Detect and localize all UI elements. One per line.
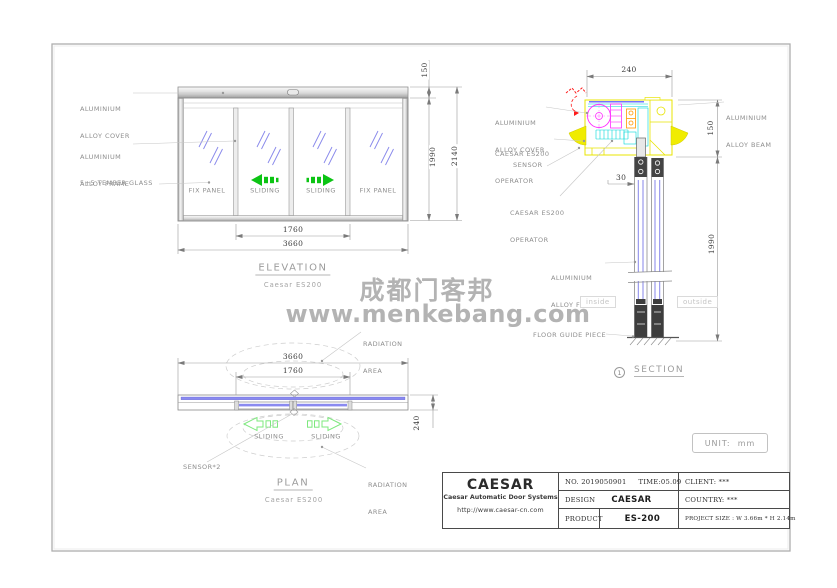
section-sensor-label: SENSOR — [513, 161, 543, 170]
label-line: ALUMINIUM — [726, 114, 771, 123]
plan-arrow-left-icon — [244, 418, 278, 431]
label-line: CAESAR ES200 — [495, 150, 549, 159]
sensor-wedge-right-icon — [671, 126, 688, 145]
title-block-company-cell: CAESAR Caesar Automatic Door Systems htt… — [443, 473, 559, 528]
plan-subtitle: Caesar ES200 — [265, 496, 323, 504]
elevation-title: ELEVATION — [255, 263, 330, 276]
label-line: RADIATION — [368, 481, 407, 490]
panel-label-sliding-left: SLIDING — [250, 187, 280, 196]
label-line: AREA — [368, 508, 407, 517]
title-block-divider — [599, 509, 600, 528]
plan-radiation-label-bottom: RADIATION AREA — [368, 463, 407, 526]
dim-plan-total-width: 3660 — [283, 353, 303, 361]
unit-note: UNIT: mm — [705, 439, 756, 448]
section-operator-bottom-label: CAESAR ES200 OPERATOR — [510, 191, 564, 254]
elevation-glass-label: 5+5 TEMPER GLASS — [80, 179, 153, 188]
section-beam-label: ALUMINIUM ALLOY BEAM — [726, 96, 771, 159]
title-block-middle-column: NO. 2019050901 TIME:05.09 DESIGN CAESAR … — [559, 473, 679, 528]
company-subtitle: Caesar Automatic Door Systems — [443, 494, 558, 501]
label-line: OPERATOR — [510, 236, 564, 245]
product-value: ES-200 — [625, 514, 661, 524]
plan-sliding-right-label: SLIDING — [311, 433, 341, 442]
project-size-value: PROJECT SIZE : W 3.66m * H 2.14m — [685, 516, 796, 522]
section-marker-number: 1 — [614, 367, 625, 378]
company-name: CAESAR — [443, 477, 558, 493]
company-website: http://www.caesar-cn.com — [443, 507, 558, 514]
panel-label-fix-right: FIX PANEL — [360, 187, 397, 196]
dim-section-door-gap: 30 — [616, 174, 626, 182]
label-line: AREA — [363, 367, 402, 376]
country-value: COUNTRY: *** — [685, 496, 738, 504]
label-line: ALUMINIUM — [80, 153, 129, 162]
outside-tag: outside — [677, 296, 718, 308]
section-frame-label: ALUMINIUM ALLOY FRAME — [551, 256, 600, 319]
panel-label-sliding-right: SLIDING — [306, 187, 336, 196]
dim-plan-depth: 240 — [413, 413, 421, 432]
dim-plan-sliding-width: 1760 — [283, 367, 303, 375]
plan-arrow-right-icon — [308, 418, 342, 431]
drawing-sheet: ALUMINIUM ALLOY COVER ALUMINIUM ALLOY FR… — [0, 0, 837, 588]
plan-sliding-left-label: SLIDING — [254, 433, 284, 442]
client-value: CLIENT: *** — [685, 478, 729, 486]
panel-label-fix-left: FIX PANEL — [189, 187, 226, 196]
inside-tag: inside — [580, 296, 616, 308]
title-block-row-country: COUNTRY: *** — [679, 491, 789, 509]
title-block-row-product: PRODUCT ES-200 — [559, 509, 678, 528]
title-block-row-client: CLIENT: *** — [679, 473, 789, 491]
dim-elevation-door-height: 1990 — [429, 145, 437, 169]
label-line: OPERATOR — [495, 177, 549, 186]
sensor-wedge-left-icon — [569, 126, 586, 145]
plan-title: PLAN — [274, 478, 313, 491]
label-line: ALUMINIUM — [80, 105, 130, 114]
title-block: CAESAR Caesar Automatic Door Systems htt… — [442, 472, 790, 529]
title-block-row-design: DESIGN CAESAR — [559, 491, 678, 509]
label-line: ALUMINIUM — [551, 274, 600, 283]
elevation-frame-label: ALUMINIUM ALLOY FRAME — [80, 135, 129, 198]
design-value: CAESAR — [611, 495, 651, 505]
dim-section-head-width: 240 — [621, 66, 636, 74]
label-line: ALLOY BEAM — [726, 141, 771, 150]
product-label: PRODUCT — [565, 515, 603, 523]
title-block-row-no: NO. 2019050901 TIME:05.09 — [559, 473, 678, 491]
label-line: RADIATION — [363, 340, 402, 349]
plan-sensor-label: SENSOR*2 — [183, 463, 221, 472]
drawing-time: TIME:05.09 — [639, 478, 682, 486]
dim-section-head-height: 150 — [707, 118, 715, 137]
drawing-number: NO. 2019050901 — [565, 478, 627, 486]
dim-elevation-total-height: 2140 — [451, 144, 459, 168]
dim-elevation-total-width: 3660 — [283, 240, 303, 248]
unit-note-box: UNIT: mm — [692, 433, 768, 453]
watermark-text-url: www.menkebang.com — [285, 300, 590, 328]
section-door-rails — [627, 138, 679, 345]
section-floor-guide-label: FLOOR GUIDE PIECE — [533, 331, 606, 340]
section-title: SECTION — [634, 365, 684, 377]
plan-radiation-label-top: RADIATION AREA — [363, 322, 402, 385]
dim-elevation-cover-height: 150 — [421, 60, 429, 79]
dim-section-door-height: 1990 — [708, 232, 716, 256]
elevation-subtitle: Caesar ES200 — [264, 281, 322, 289]
label-line: ALUMINIUM — [495, 119, 545, 128]
design-label: DESIGN — [565, 496, 595, 504]
title-block-row-project-size: PROJECT SIZE : W 3.66m * H 2.14m — [679, 509, 789, 528]
dim-elevation-sliding-width: 1760 — [283, 226, 303, 234]
label-line: CAESAR ES200 — [510, 209, 564, 218]
title-block-right-column: CLIENT: *** COUNTRY: *** PROJECT SIZE : … — [679, 473, 789, 528]
